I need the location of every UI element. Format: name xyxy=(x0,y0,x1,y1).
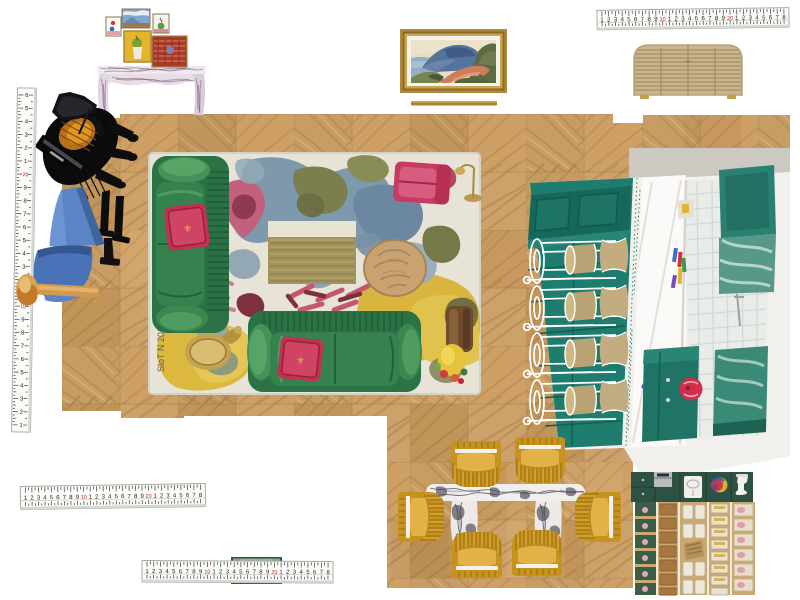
svg-text:20: 20 xyxy=(23,172,29,178)
svg-text:10: 10 xyxy=(81,495,87,501)
svg-text:⚜: ⚜ xyxy=(295,356,305,368)
svg-text:20: 20 xyxy=(146,494,152,500)
svg-text:20: 20 xyxy=(271,570,277,576)
svg-text:10: 10 xyxy=(660,17,666,23)
svg-text:20: 20 xyxy=(727,16,733,22)
svg-text:10: 10 xyxy=(204,569,210,575)
svg-text:⚜: ⚜ xyxy=(183,223,193,235)
